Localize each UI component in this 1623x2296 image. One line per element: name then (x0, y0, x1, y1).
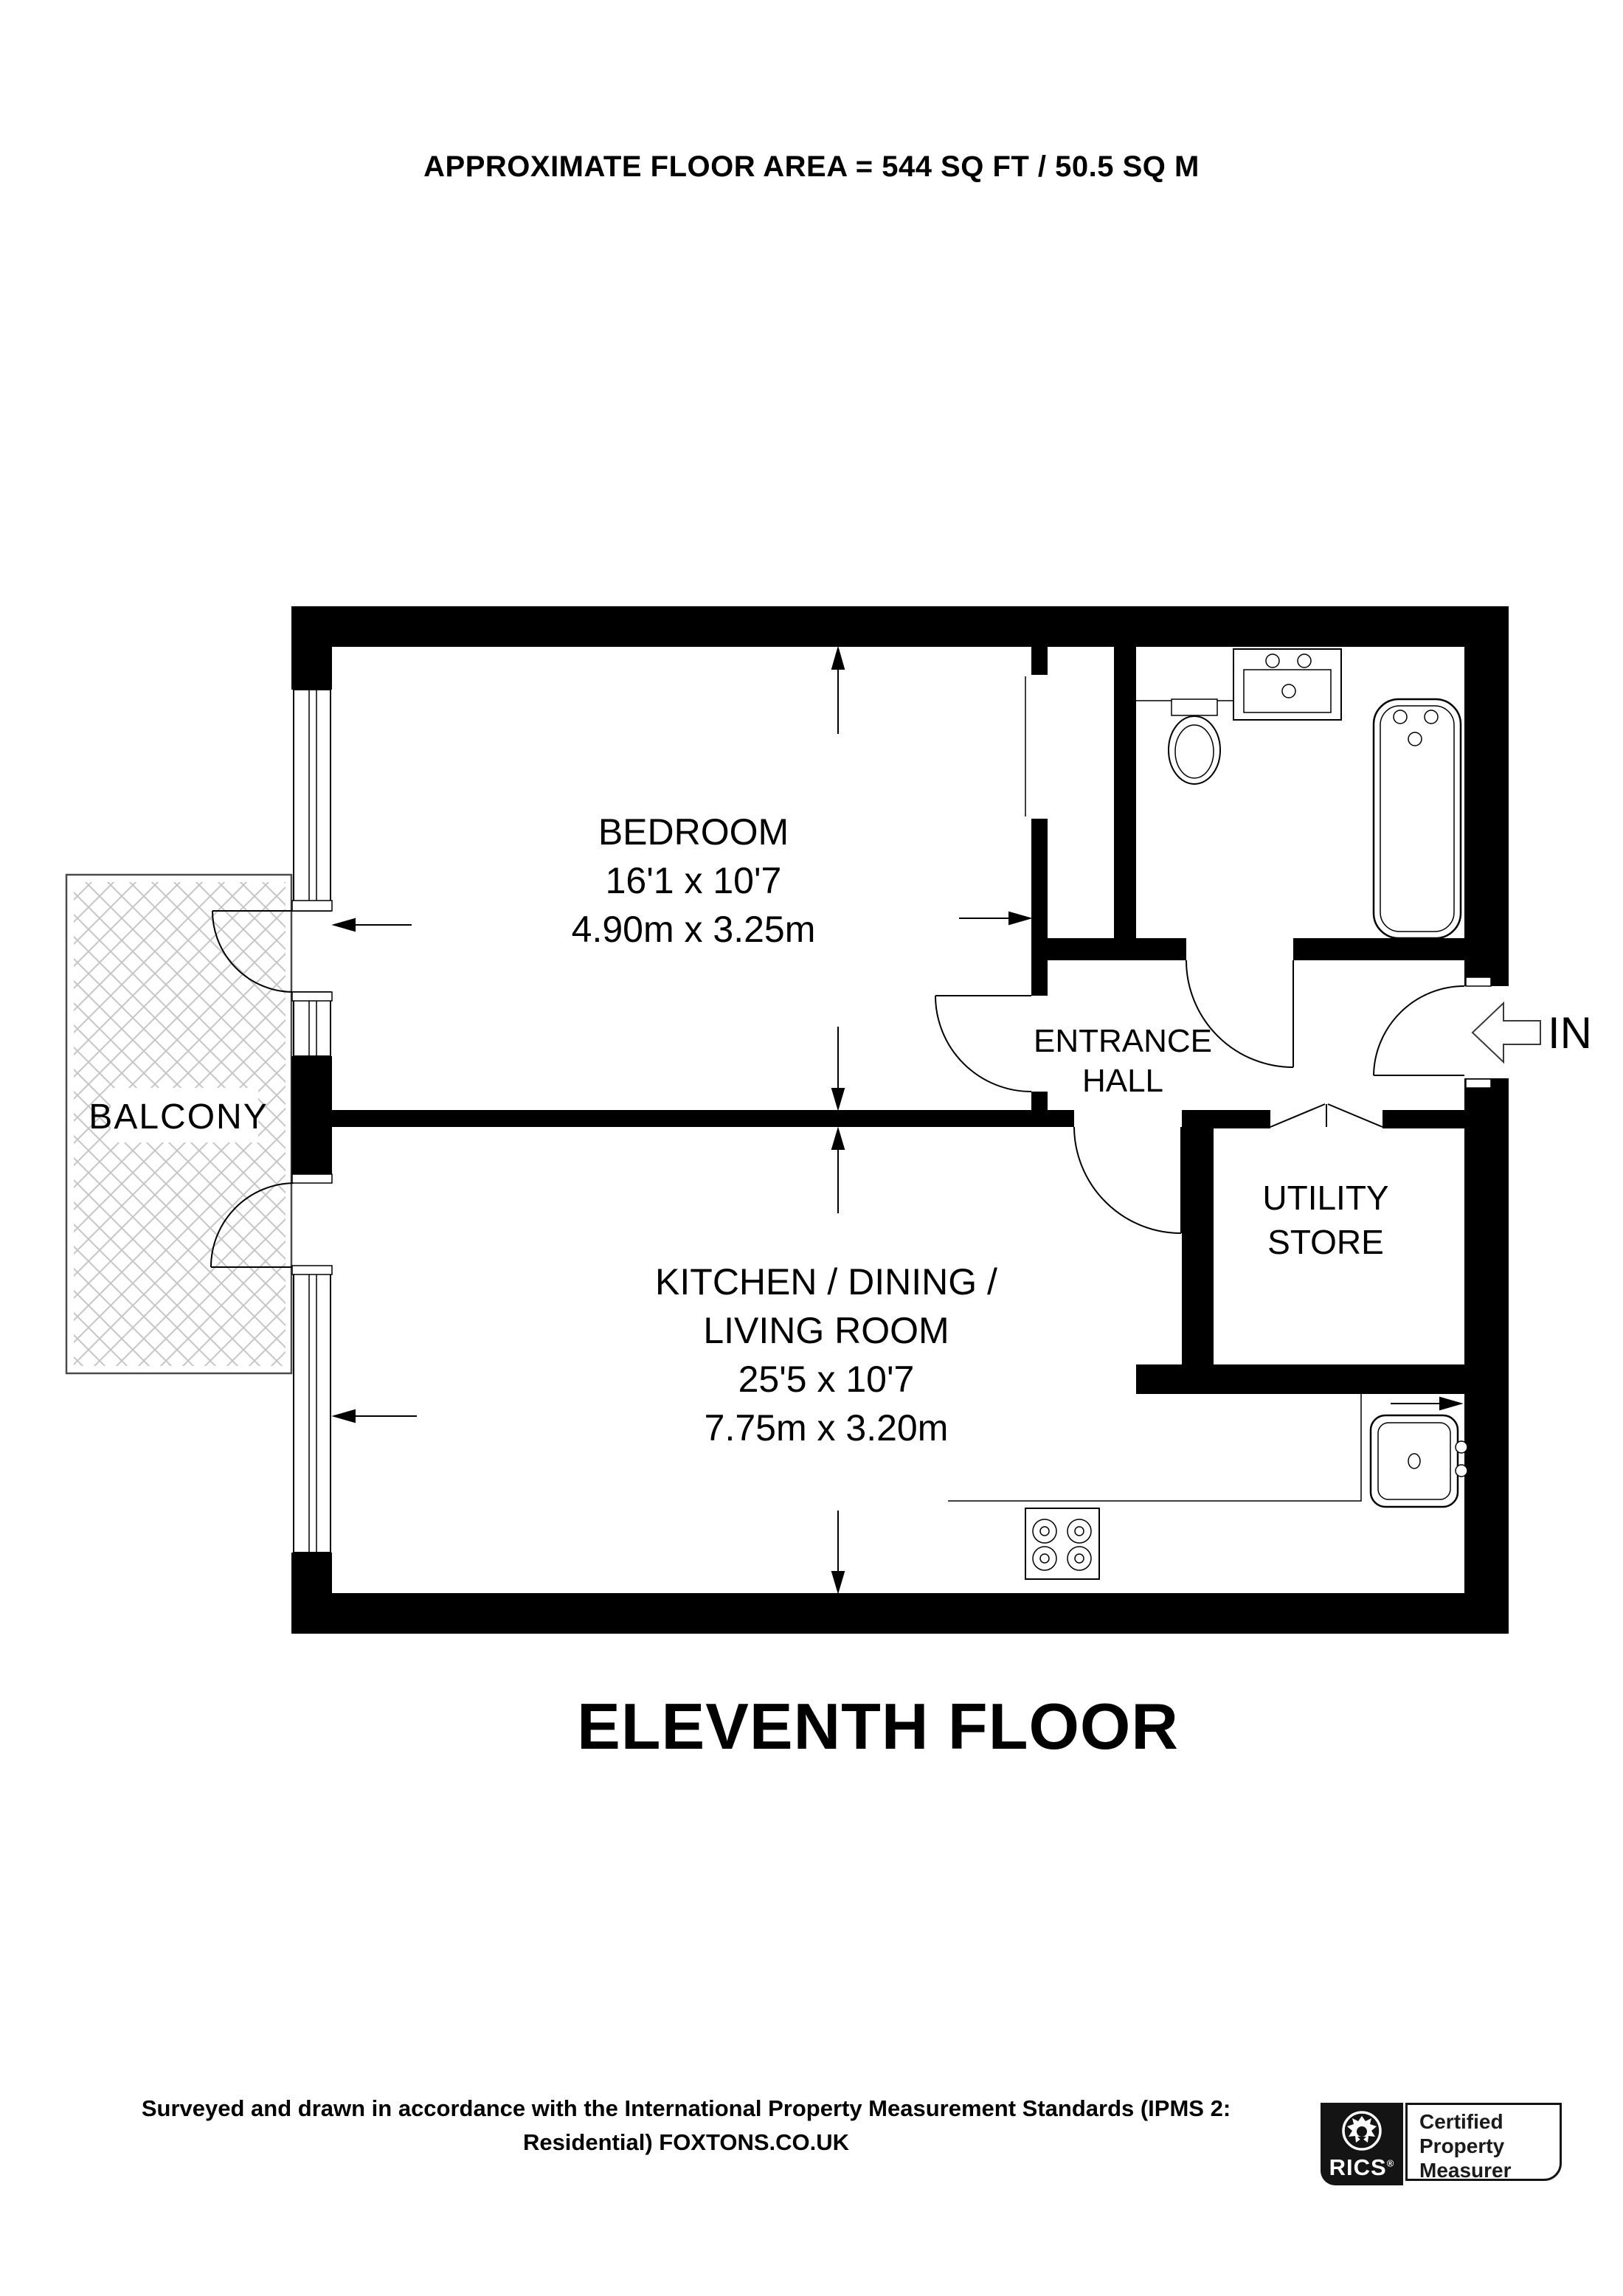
window-living (294, 1267, 331, 1553)
toilet (1169, 699, 1220, 784)
bedroom-dims-metric: 4.90m x 3.25m (572, 909, 816, 950)
rics-wordmark: RICS® (1321, 2154, 1403, 2181)
bedroom-dims-imperial: 16'1 x 10'7 (606, 860, 782, 901)
bathroom-sink (1233, 649, 1341, 720)
wall-right-lower (1464, 1078, 1509, 1634)
bedroom-name: BEDROOM (598, 811, 789, 853)
kitchen-fixtures (948, 1394, 1467, 1579)
wall-room-divider (332, 1110, 1074, 1127)
utility-store-label: UTILITY STORE (1262, 1179, 1388, 1261)
hall-name-line2: HALL (1082, 1063, 1163, 1099)
wall-bedroom-stub-bottom (1031, 1092, 1048, 1112)
wall-right-upper (1464, 647, 1509, 986)
wall-utility-top-left (1214, 1110, 1270, 1128)
wall-bathroom-left (1114, 647, 1136, 938)
wall-left-pier-top (291, 606, 332, 690)
certified-property-measurer-panel: Certified Property Measurer (1405, 2103, 1562, 2181)
floorplan-drawing: IN BEDROOM 16'1 x 10'7 4.90m x 3.25m KIT… (0, 0, 1623, 2296)
arrow-bedroom-left (334, 919, 412, 931)
badge-line1: Certified (1419, 2111, 1560, 2132)
arrow-bedroom-right (959, 912, 1030, 924)
kitchen-name-line1: KITCHEN / DINING / (655, 1261, 997, 1303)
kitchen-sink (1371, 1415, 1467, 1507)
entrance-hall-label: ENTRANCE HALL (1034, 1023, 1212, 1099)
utility-name-line1: UTILITY (1262, 1179, 1388, 1217)
wall-left-pier-bottom (291, 1553, 332, 1634)
door-living-hall (1074, 1127, 1181, 1233)
arrow-bedroom-up (832, 648, 844, 734)
bathtub (1374, 699, 1461, 938)
in-arrow-icon (1473, 1003, 1540, 1062)
wall-utility-top-right (1383, 1110, 1464, 1128)
wall-bathroom-bottom-left (1048, 938, 1186, 960)
rics-logo: RICS® (1321, 2103, 1403, 2185)
floorplan-page: APPROXIMATE FLOOR AREA = 544 SQ FT / 50.… (0, 0, 1623, 2296)
rics-text: RICS (1329, 2154, 1387, 2180)
bedroom-label: BEDROOM 16'1 x 10'7 4.90m x 3.25m (572, 811, 816, 950)
wall-bedroom-stub-top (1031, 647, 1048, 675)
arrow-living-right (1391, 1398, 1461, 1409)
kitchen-counter-line (948, 1394, 1361, 1501)
door-entrance (1374, 986, 1464, 1075)
footer-line1: Surveyed and drawn in accordance with th… (0, 2092, 1372, 2126)
badge-line3: Measurer (1419, 2160, 1560, 2181)
entrance-in: IN (1473, 1003, 1592, 1062)
utility-name-line2: STORE (1267, 1223, 1384, 1261)
wall-left-pier-mid (291, 1056, 332, 1183)
arrow-living-left (334, 1410, 417, 1422)
hall-name-line1: ENTRANCE (1034, 1023, 1212, 1059)
bathroom-fixtures (1136, 649, 1461, 938)
kitchen-dims-imperial: 25'5 x 10'7 (738, 1359, 915, 1400)
window-mid (294, 992, 331, 1056)
kitchen-label: KITCHEN / DINING / LIVING ROOM 25'5 x 10… (655, 1261, 997, 1449)
footer-line2: Residential) FOXTONS.CO.UK (0, 2126, 1372, 2160)
wall-utility-left (1182, 1110, 1214, 1394)
registered-mark: ® (1387, 2158, 1395, 2169)
kitchen-dims-metric: 7.75m x 3.20m (705, 1407, 949, 1449)
footer-disclaimer: Surveyed and drawn in accordance with th… (0, 2092, 1372, 2160)
in-label: IN (1548, 1008, 1592, 1058)
hob (1025, 1508, 1099, 1579)
wall-bedroom-partition (1031, 819, 1048, 996)
wall-utility-bottom (1136, 1364, 1464, 1394)
wall-top (291, 606, 1509, 647)
rics-badge: RICS® Certified Property Measurer (1321, 2103, 1564, 2185)
rics-lion-icon (1321, 2103, 1403, 2156)
door-bedroom (935, 996, 1031, 1092)
floor-label: ELEVENTH FLOOR (140, 1689, 1616, 1764)
arrow-divider-down (832, 1027, 844, 1109)
wall-bathroom-bottom-right (1293, 938, 1464, 960)
kitchen-name-line2: LIVING ROOM (703, 1310, 949, 1351)
badge-line2: Property (1419, 2135, 1560, 2157)
window-bedroom (294, 690, 331, 911)
arrow-divider-up (832, 1129, 844, 1213)
arrow-living-down (832, 1511, 844, 1592)
balcony-name: BALCONY (89, 1097, 268, 1137)
door-utility-double (1270, 1104, 1383, 1127)
wall-bottom (291, 1593, 1509, 1634)
